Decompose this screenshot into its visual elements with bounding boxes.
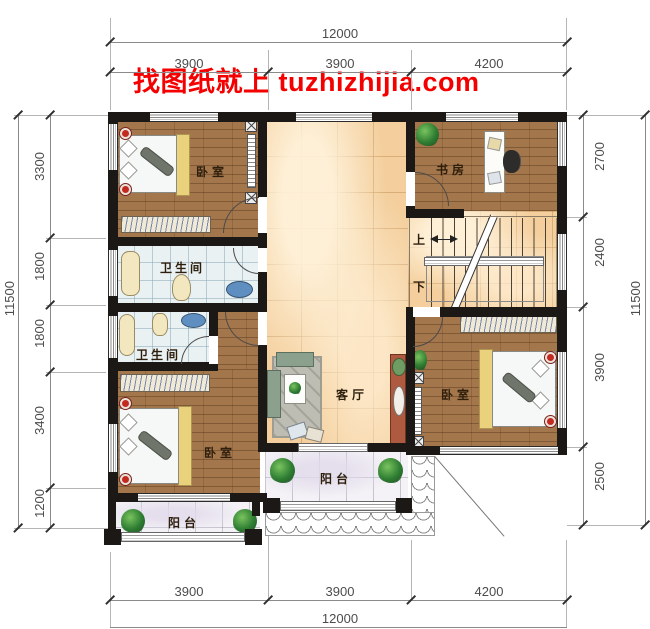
dim-line-top-segments — [110, 72, 567, 73]
column — [396, 498, 412, 513]
wardrobe — [460, 316, 557, 333]
door-opening — [413, 307, 440, 317]
window — [108, 250, 118, 296]
window — [440, 446, 558, 455]
dim-bottom-seg3: 4200 — [439, 584, 539, 599]
label-stair-down: 下 — [413, 278, 425, 295]
wall — [406, 209, 464, 218]
bed-frame — [479, 349, 493, 429]
extension-line — [268, 50, 269, 110]
sink — [181, 313, 206, 328]
door-opening — [209, 336, 218, 364]
balcony-plant — [121, 509, 145, 533]
extension-line — [110, 552, 111, 628]
stair-edge-line — [462, 216, 557, 217]
extension-line — [411, 50, 412, 110]
dim-left-total: 11500 — [2, 281, 17, 316]
window — [557, 352, 567, 428]
desk-papers — [487, 137, 502, 151]
dim-left-seg3: 1800 — [32, 319, 47, 348]
extension-line — [566, 540, 567, 628]
sofa — [267, 370, 281, 418]
dim-line-left-segments — [50, 115, 51, 528]
dim-left-seg4: 3400 — [32, 406, 47, 435]
tv — [393, 386, 405, 416]
radiator — [247, 134, 256, 188]
label-stair-up: 上 — [413, 231, 425, 248]
dim-line-top-total — [110, 42, 567, 43]
extension-line — [110, 18, 111, 110]
desk-papers — [487, 171, 502, 185]
dim-right-seg3: 3900 — [592, 353, 607, 382]
dim-left-seg2: 1800 — [32, 252, 47, 281]
speaker — [545, 416, 556, 427]
column — [104, 529, 121, 545]
window — [108, 424, 118, 472]
extension-line — [46, 488, 106, 489]
extension-line — [46, 238, 106, 239]
extension-line — [46, 372, 106, 373]
study-plant — [416, 123, 439, 146]
bed-frame — [176, 134, 190, 196]
dim-top-total: 12000 — [290, 26, 390, 41]
dim-left-seg5: 1200 — [32, 489, 47, 518]
bedroom-plant — [413, 350, 427, 370]
extension-line — [46, 305, 106, 306]
speaker — [120, 474, 131, 485]
balcony-plant — [378, 458, 403, 483]
window — [557, 122, 567, 166]
balcony-railing — [121, 532, 245, 542]
dim-top-seg2: 3900 — [290, 56, 390, 71]
window — [296, 112, 372, 122]
extension-line — [566, 18, 567, 110]
label-bedroom-top-left: 卧室 — [196, 163, 228, 180]
door-opening — [406, 172, 415, 206]
eave-diagonal-line — [434, 456, 505, 537]
stair-edge-line — [409, 218, 410, 307]
washbasin — [152, 313, 168, 336]
extension-line — [567, 447, 587, 448]
door-opening — [258, 312, 267, 345]
wardrobe — [121, 216, 211, 233]
window — [150, 112, 218, 122]
window — [138, 493, 230, 502]
column — [245, 529, 262, 545]
dim-left-seg1: 3300 — [32, 152, 47, 181]
door-opening — [258, 248, 267, 272]
balcony-plant — [270, 458, 295, 483]
decor — [392, 358, 406, 376]
wall — [108, 303, 267, 312]
dim-line-bottom-segments — [110, 600, 567, 601]
window — [108, 316, 118, 358]
extension-line — [567, 525, 645, 526]
dim-right-seg2: 2400 — [592, 238, 607, 267]
label-bathroom-lower: 卫生间 — [136, 346, 181, 363]
label-bathroom-upper: 卫生间 — [160, 259, 205, 276]
bed-frame — [178, 406, 192, 486]
bathtub — [119, 314, 135, 356]
dim-line-right-total — [645, 115, 646, 525]
label-bedroom-right: 卧室 — [441, 386, 473, 403]
toilet — [172, 274, 191, 301]
floor-plan-sheet: 找图纸就上 tuzhizhijia.com 12000 3900 3900 42… — [0, 0, 650, 629]
table-plant — [289, 382, 301, 394]
stair-arrow-right — [450, 235, 458, 243]
bathtub — [121, 251, 140, 296]
stair-arrow-left — [430, 235, 438, 243]
label-bedroom-bottom-left: 卧室 — [204, 444, 236, 461]
speaker — [120, 398, 131, 409]
extension-line — [567, 115, 645, 116]
balcony-railing — [280, 501, 396, 511]
door-opening — [258, 197, 267, 233]
label-balcony-bottom-left: 阳台 — [168, 514, 200, 531]
dim-right-seg4: 2500 — [592, 462, 607, 491]
speaker — [120, 184, 131, 195]
eave-scallop-horizontal — [265, 512, 435, 536]
dim-right-total: 11500 — [628, 281, 643, 316]
dim-line-left-total — [18, 115, 19, 528]
desk-chair — [503, 150, 520, 173]
dim-top-seg1: 3900 — [139, 56, 239, 71]
window — [446, 112, 518, 122]
french-door — [298, 443, 368, 452]
dim-line-right-segments — [583, 115, 584, 525]
wall — [252, 502, 260, 516]
dim-bottom-total: 12000 — [290, 611, 390, 626]
speaker — [120, 128, 131, 139]
wardrobe — [120, 374, 210, 392]
extension-line — [567, 217, 587, 218]
label-living-room: 客厅 — [336, 386, 368, 403]
dim-bottom-seg2: 3900 — [290, 584, 390, 599]
wall — [108, 237, 267, 246]
window — [557, 234, 567, 290]
dim-right-seg1: 2700 — [592, 142, 607, 171]
extension-line — [411, 540, 412, 600]
dim-line-bottom-total — [110, 627, 567, 628]
sofa — [276, 352, 314, 367]
window — [108, 124, 118, 170]
dim-top-seg3: 4200 — [439, 56, 539, 71]
column — [263, 498, 280, 513]
speaker — [545, 352, 556, 363]
label-balcony-center: 阳台 — [320, 470, 352, 487]
dim-bottom-seg1: 3900 — [139, 584, 239, 599]
stair-handrail — [424, 257, 544, 266]
extension-line — [14, 528, 108, 529]
label-study: 书房 — [436, 161, 468, 178]
extension-line — [567, 307, 587, 308]
extension-line — [14, 115, 108, 116]
wall — [258, 112, 267, 452]
sink — [226, 281, 253, 298]
